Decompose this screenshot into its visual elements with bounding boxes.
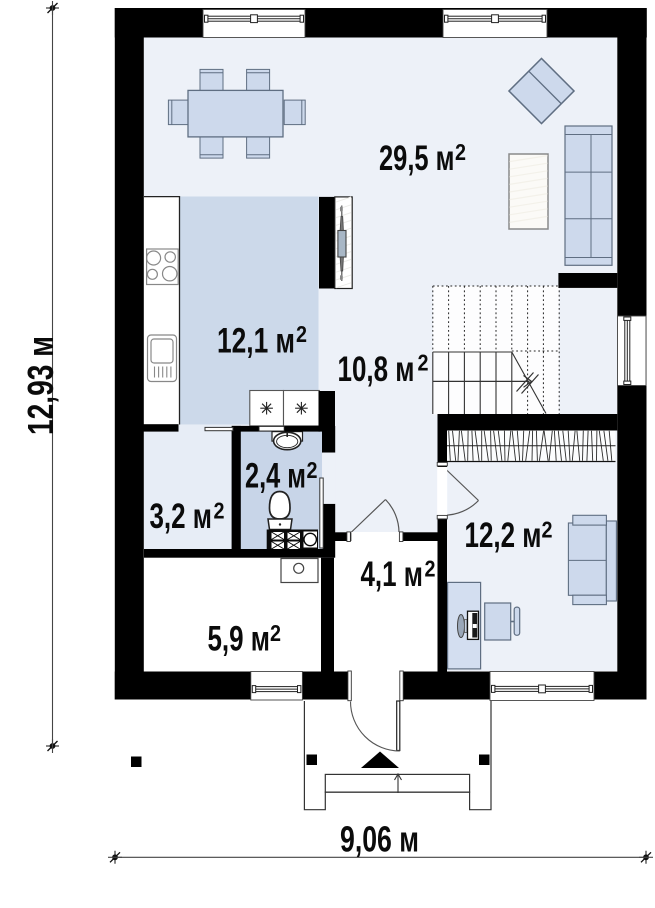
svg-text:12,1 м: 12,1 м <box>217 321 295 360</box>
svg-text:2: 2 <box>214 498 225 524</box>
svg-text:2: 2 <box>425 556 436 582</box>
svg-text:9,06 м: 9,06 м <box>340 819 419 860</box>
svg-text:4,1 м: 4,1 м <box>361 555 424 594</box>
svg-text:2: 2 <box>418 350 429 376</box>
svg-text:2: 2 <box>270 620 281 646</box>
svg-text:2,4 м: 2,4 м <box>245 456 306 495</box>
svg-text:3,2 м: 3,2 м <box>150 497 213 536</box>
svg-text:12,93 м: 12,93 м <box>20 336 61 435</box>
svg-text:2: 2 <box>307 457 318 483</box>
svg-text:29,5 м: 29,5 м <box>379 139 455 178</box>
svg-text:5,9 м: 5,9 м <box>208 620 271 659</box>
svg-text:2: 2 <box>455 139 466 165</box>
svg-text:2: 2 <box>542 516 553 542</box>
svg-text:2: 2 <box>296 321 307 347</box>
svg-text:10,8 м: 10,8 м <box>338 350 415 389</box>
svg-text:12,2 м: 12,2 м <box>465 516 542 555</box>
